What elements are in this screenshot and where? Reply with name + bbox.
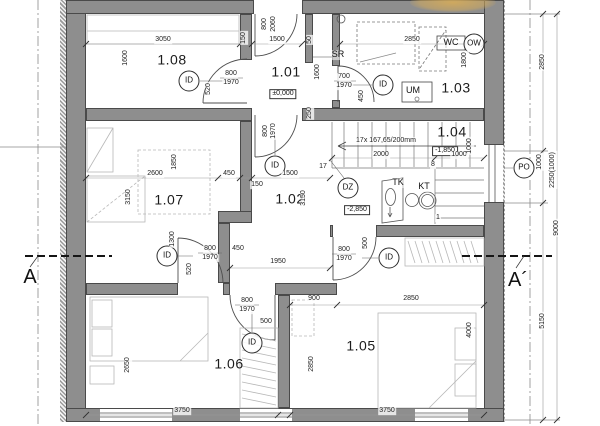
dimension-label: 1500 xyxy=(281,170,299,178)
dimension-label: 1970 xyxy=(238,306,256,314)
dimension-label: 3150 xyxy=(300,189,308,207)
dimension-label: 1500 xyxy=(268,36,286,44)
dimension-label: 1950 xyxy=(269,258,287,266)
dimension-label: 3050 xyxy=(154,36,172,44)
dimension-label: 1970 xyxy=(335,255,353,263)
dimension-label: 8 xyxy=(430,161,436,169)
dimension-label: 500 xyxy=(259,318,273,326)
room-number-label: 1.08 xyxy=(157,52,186,67)
dimension-label: 800 xyxy=(262,124,270,138)
dimension-label: 1000 xyxy=(466,137,474,155)
dimension-label: 800 xyxy=(337,246,351,254)
fixture-label: TK xyxy=(392,178,404,188)
dimension-label: 1970 xyxy=(270,122,278,140)
room-number-label: 1.05 xyxy=(346,338,375,353)
dimension-label: 1000 xyxy=(450,151,468,159)
dimension-label: 150 xyxy=(240,31,248,45)
dimension-label: 800 xyxy=(240,297,254,305)
dimension-label: 3750 xyxy=(173,407,191,415)
door-circle-marker: ID xyxy=(373,75,394,96)
room-number-label: 1.03 xyxy=(441,80,470,95)
dimension-label: 500 xyxy=(362,236,370,250)
door-circle-marker: PO xyxy=(514,158,535,179)
room-number-label: 1.04 xyxy=(437,124,466,139)
dimension-label: 3750 xyxy=(378,407,396,415)
dimension-label: 2850 xyxy=(308,355,316,373)
door-circle-marker: ID xyxy=(157,246,178,267)
dimension-label: 2060 xyxy=(270,15,278,33)
fixture-label: SR xyxy=(332,50,345,60)
dimension-label: 520 xyxy=(205,82,213,96)
dimension-label: 17x 167,65/200mm xyxy=(355,137,417,145)
dimension-label: 800 xyxy=(261,17,269,31)
dimension-label: 2250(1000) xyxy=(549,151,557,189)
dimension-label: 1800 xyxy=(461,51,469,69)
fixture-label: UM xyxy=(406,86,420,96)
dimension-label: 450 xyxy=(231,245,245,253)
dimension-label: 520 xyxy=(186,262,194,276)
dimension-label: 2650 xyxy=(124,356,132,374)
dimension-label: 450 xyxy=(222,170,236,178)
fixture-label: WC xyxy=(444,38,459,48)
dimension-label: 1300 xyxy=(169,230,177,248)
door-circle-marker: DZ xyxy=(338,178,359,199)
dimension-label: 50 xyxy=(306,35,314,45)
floor-plan: 1.081.011.031.041.071.021.061.05±0,000-1… xyxy=(0,0,600,426)
dimension-label: 1 xyxy=(435,214,441,222)
dimension-label: 2850 xyxy=(402,295,420,303)
level-marker: -2,850 xyxy=(344,205,370,215)
dimension-label: 900 xyxy=(307,295,321,303)
dimension-label: 9000 xyxy=(553,219,561,237)
dimension-label: 250 xyxy=(306,106,314,120)
section-marker-label: A xyxy=(23,266,36,288)
dimension-label: 3150 xyxy=(125,188,133,206)
dimension-label: 1000 xyxy=(536,153,544,171)
room-number-label: 1.07 xyxy=(154,192,183,207)
door-circle-marker: ID xyxy=(379,248,400,269)
level-marker: ±0,000 xyxy=(269,89,296,99)
dimension-label: 4000 xyxy=(466,321,474,339)
dimension-label: 450 xyxy=(358,89,366,103)
dimension-label: 1970 xyxy=(335,82,353,90)
dimension-label: 2850 xyxy=(539,53,547,71)
dimension-label: 800 xyxy=(224,70,238,78)
dimension-label: 1970 xyxy=(222,79,240,87)
room-number-label: 1.06 xyxy=(214,356,243,371)
dimension-label: 17 xyxy=(318,163,328,171)
dimension-label: 1970 xyxy=(201,254,219,262)
section-marker-label: A´ xyxy=(508,269,528,291)
dimension-label: 1850 xyxy=(171,153,179,171)
dimension-label: 700 xyxy=(337,73,351,81)
dimension-label: 2850 xyxy=(403,36,421,44)
dimension-label: 150 xyxy=(250,181,264,189)
dimension-label: 2600 xyxy=(146,170,164,178)
dimension-label: 1600 xyxy=(122,49,130,67)
dimension-label: 800 xyxy=(203,245,217,253)
windows xyxy=(100,145,503,421)
dimension-label: 1600 xyxy=(314,63,322,81)
dimension-label: 5150 xyxy=(539,312,547,330)
door-circle-marker: ID xyxy=(242,333,263,354)
room-number-label: 1.01 xyxy=(271,64,300,79)
door-circle-marker: ID xyxy=(179,71,200,92)
dimension-label: 2000 xyxy=(372,151,390,159)
fixture-label: KT xyxy=(418,182,430,192)
